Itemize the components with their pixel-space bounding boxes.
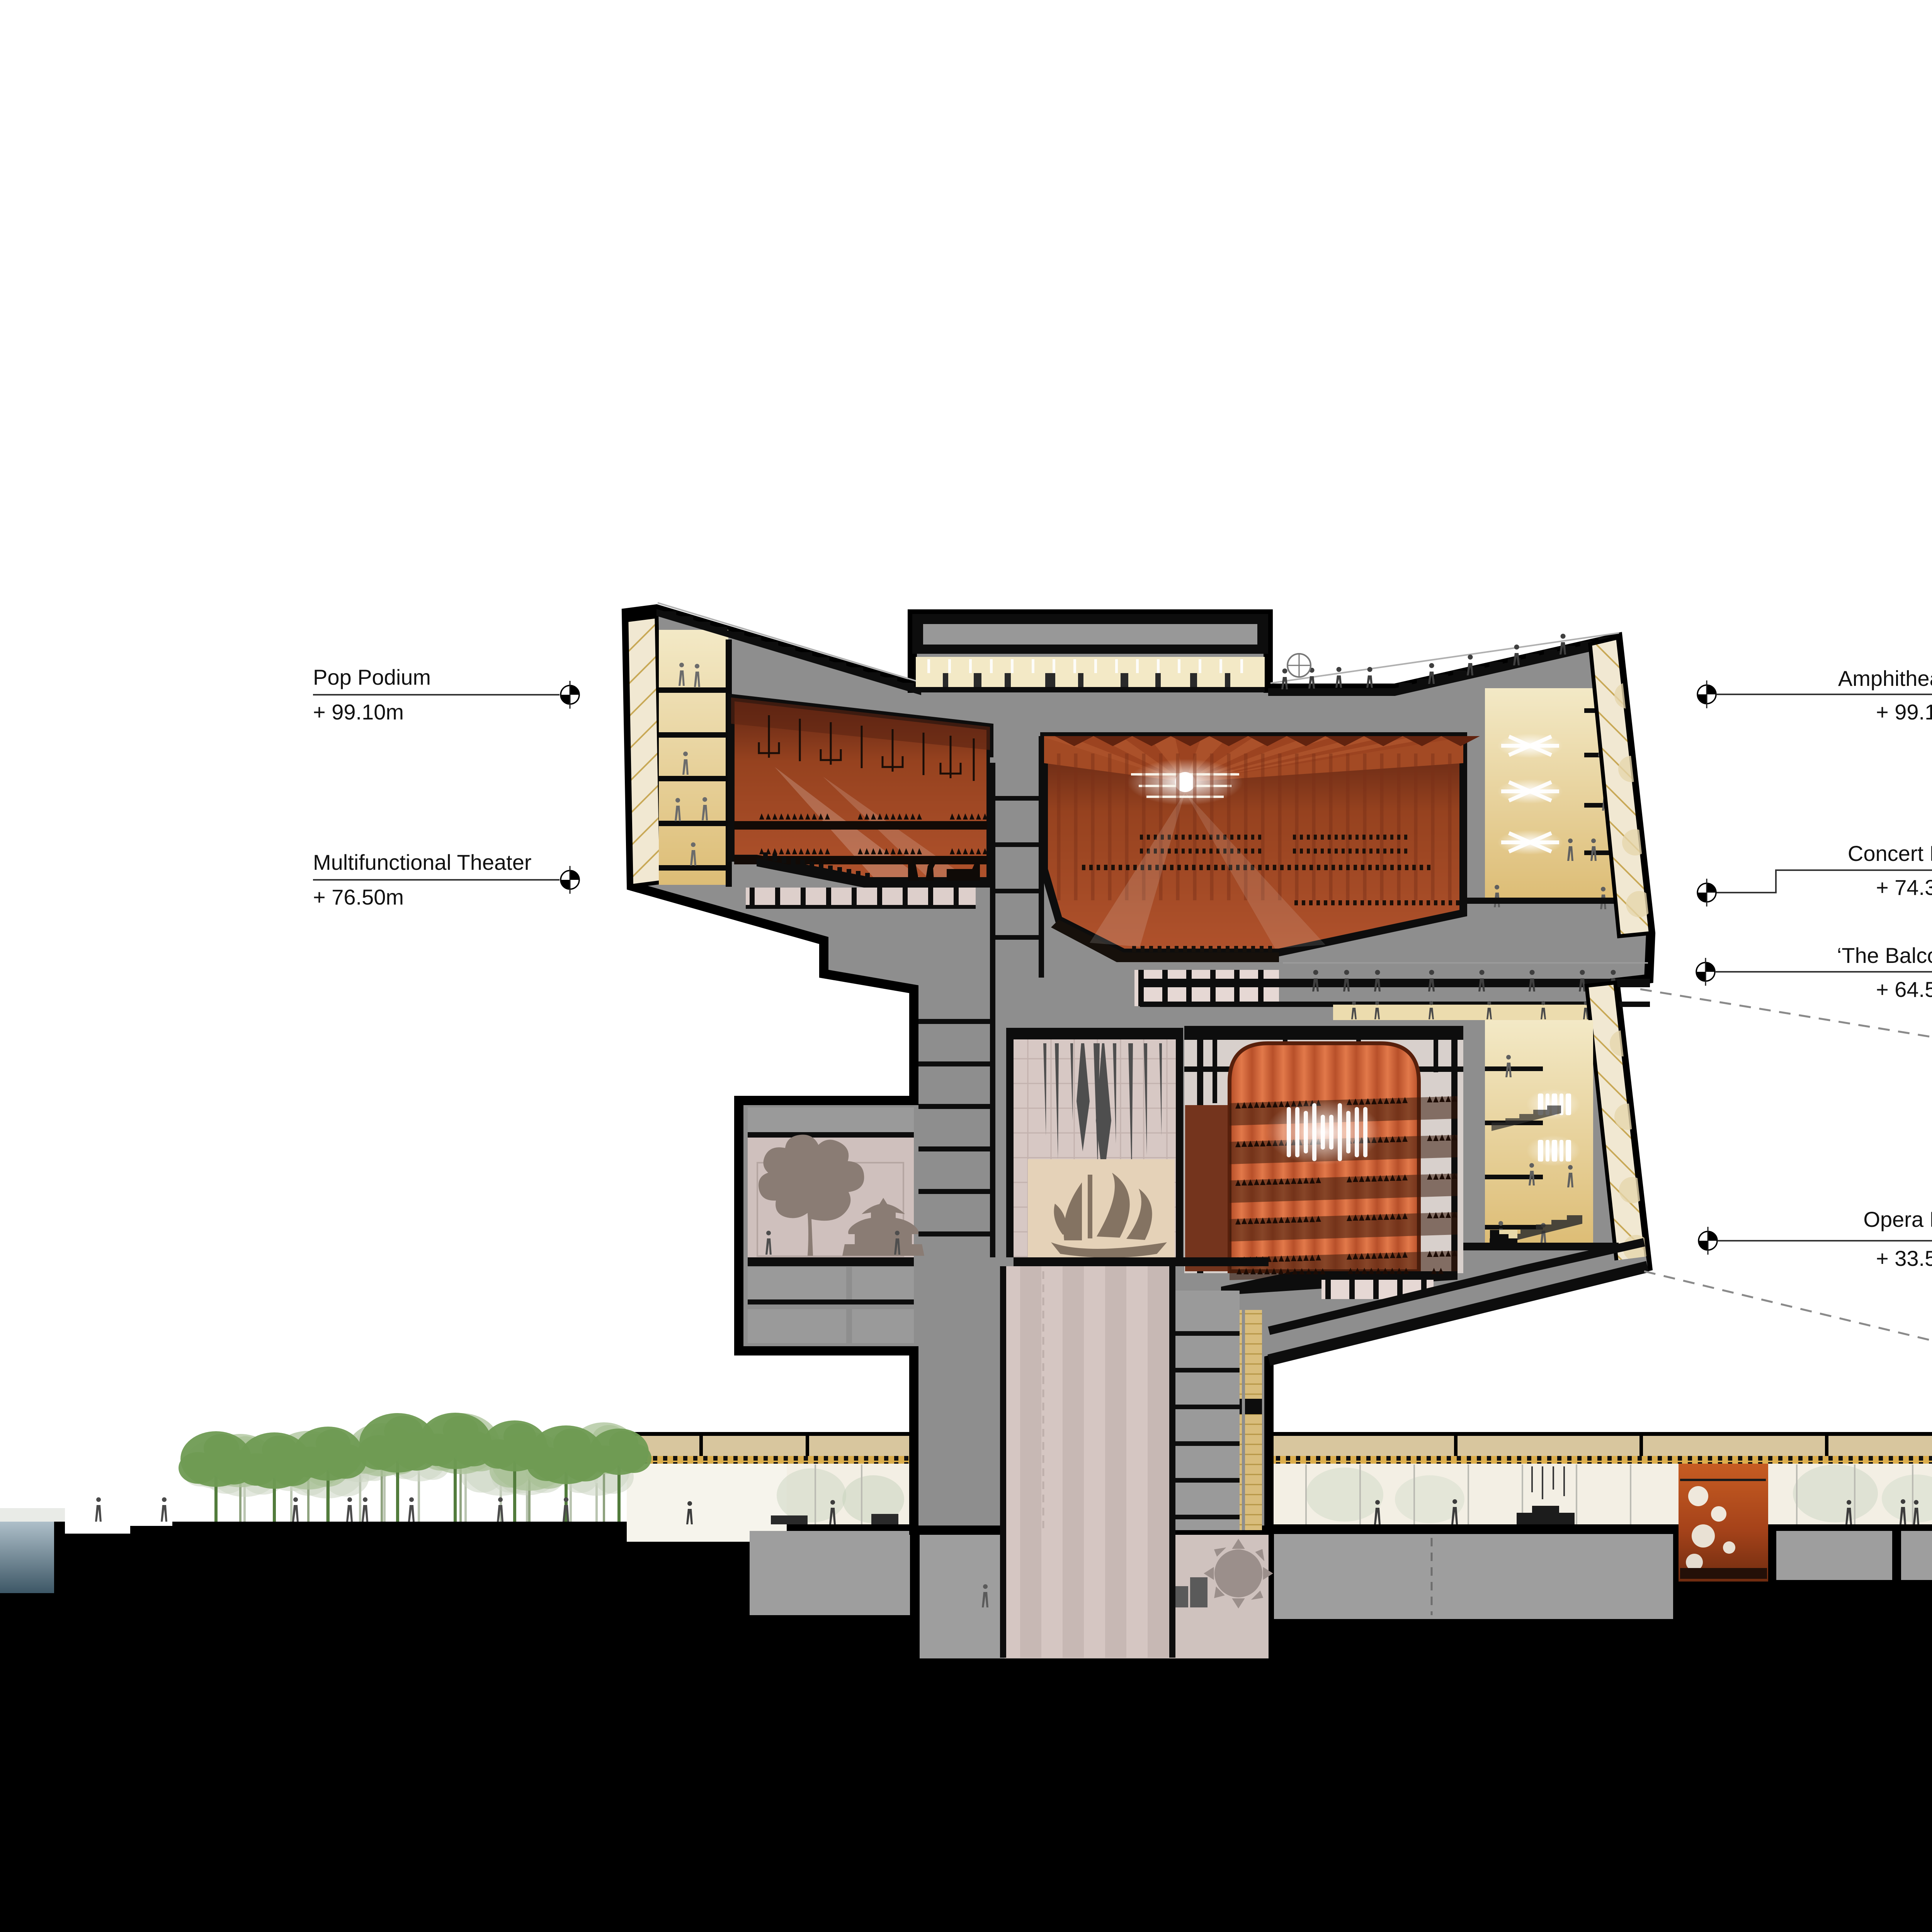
svg-text:‘The Balcony’: ‘The Balcony’ [1837,943,1932,968]
svg-text:+ 74.30m: + 74.30m [1876,875,1932,900]
svg-text:Pop Podium: Pop Podium [313,665,431,689]
svg-text:Multifunctional Theater: Multifunctional Theater [313,850,532,874]
svg-text:Concert Hall: Concert Hall [1848,841,1932,866]
svg-text:+ 76.50m: + 76.50m [313,885,404,909]
svg-text:+ 33.50m: + 33.50m [1876,1246,1932,1270]
svg-text:Opera Hall: Opera Hall [1863,1207,1932,1231]
svg-text:+ 99.10m: + 99.10m [1876,700,1932,724]
svg-text:+ 64.50m: + 64.50m [1876,977,1932,1002]
svg-text:+ 99.10m: + 99.10m [313,700,404,724]
svg-text:Amphitheater: Amphitheater [1838,666,1932,690]
